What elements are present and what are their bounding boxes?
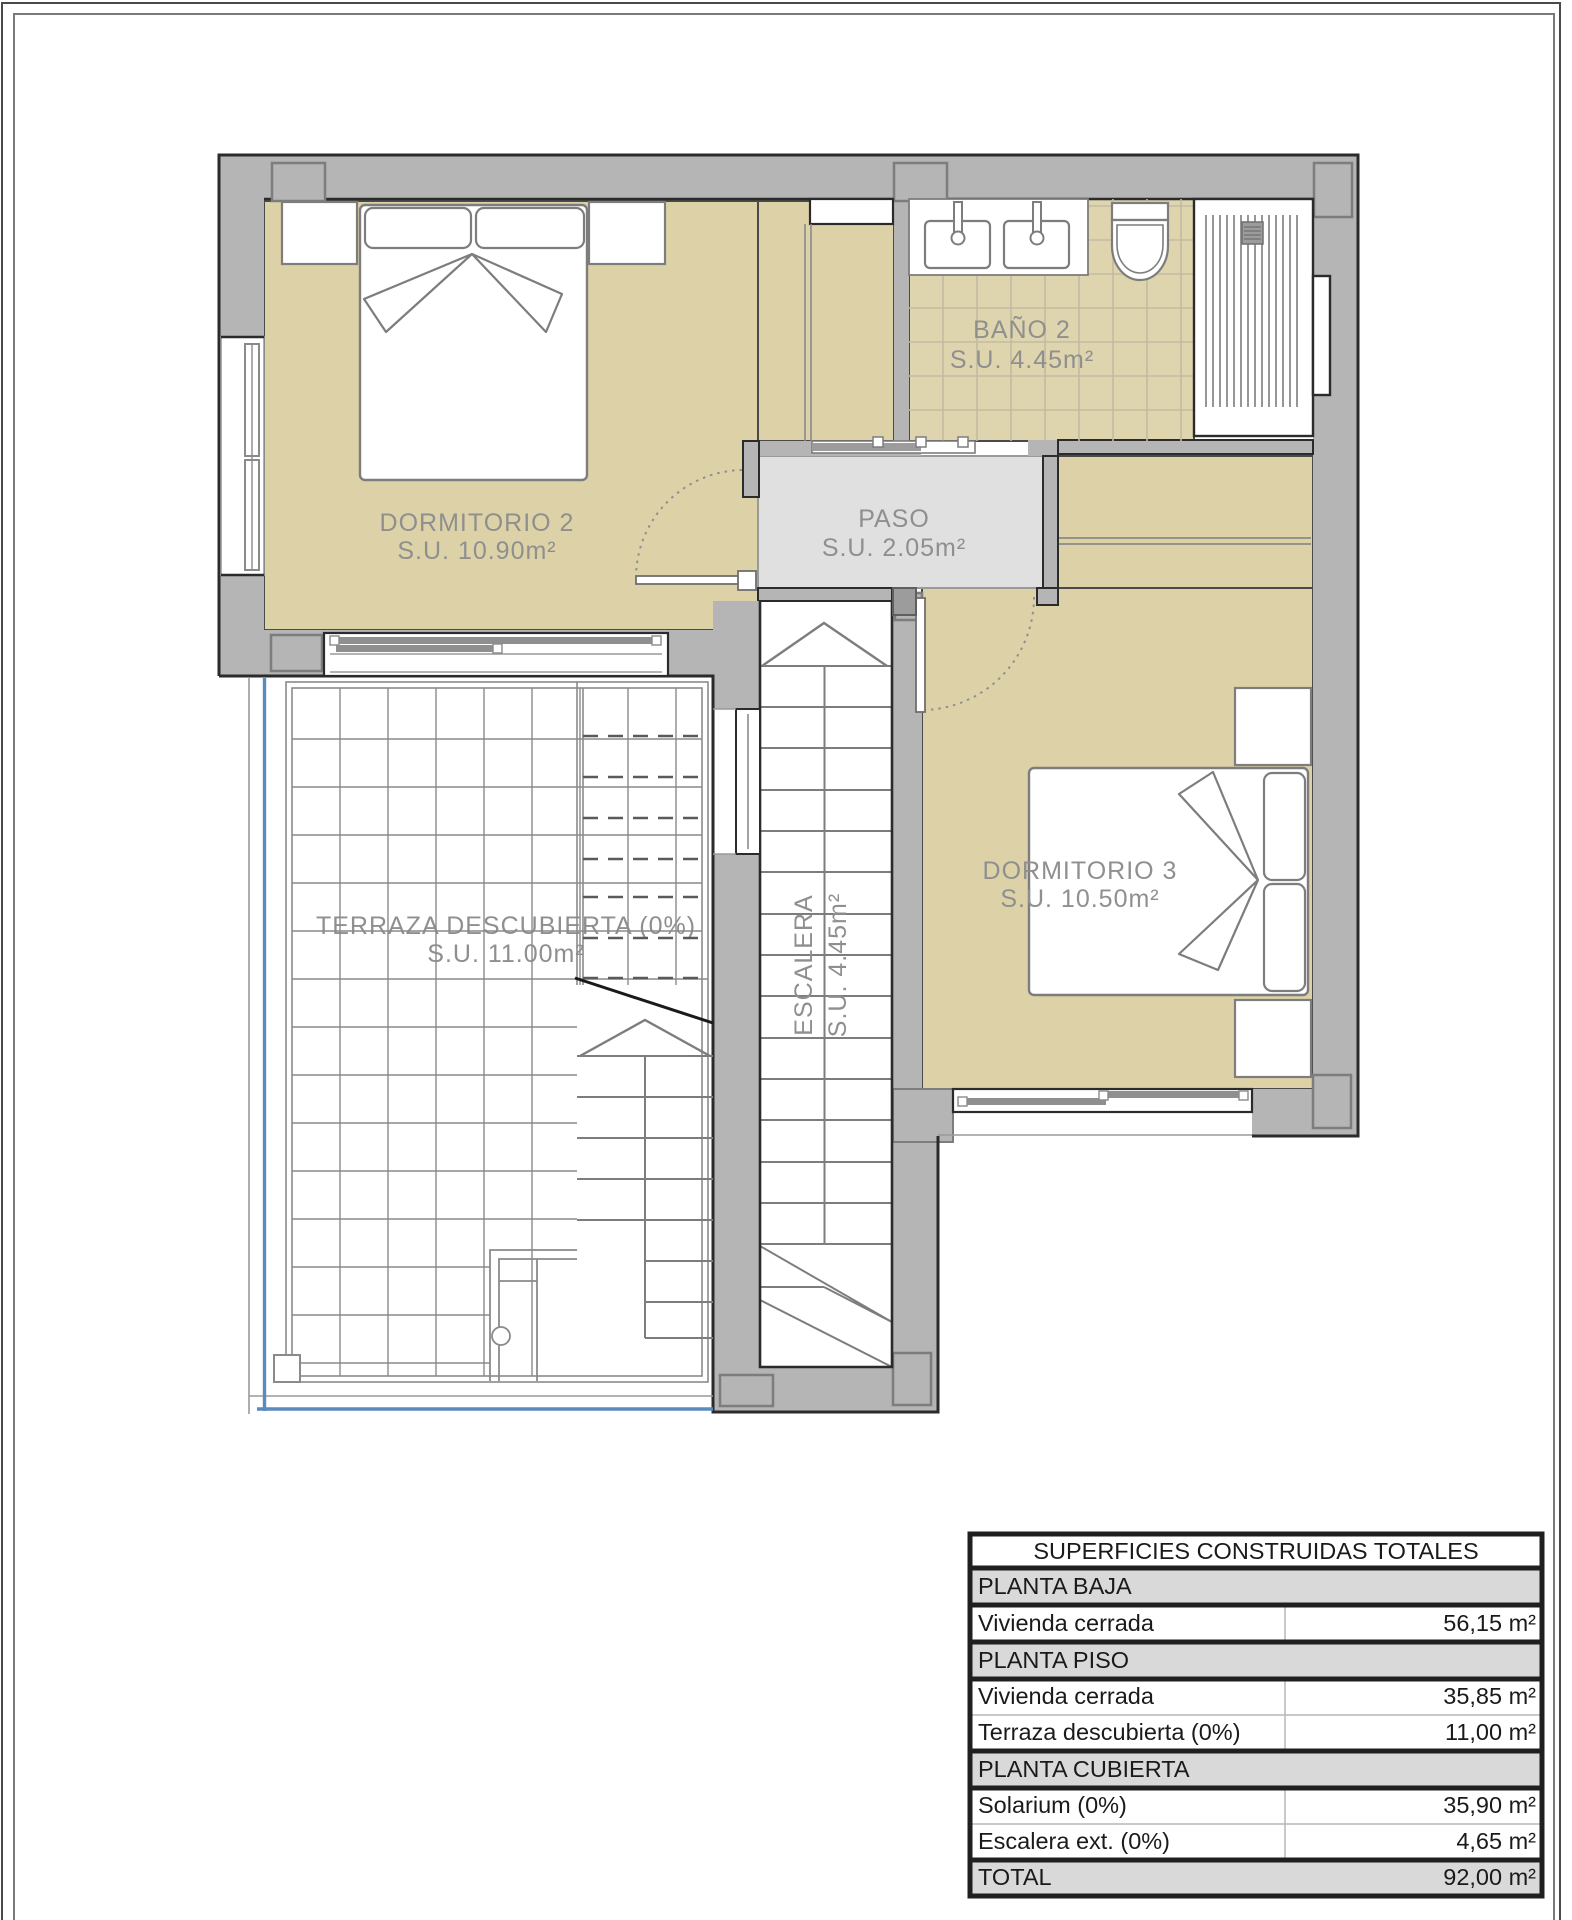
svg-text:Escalera ext. (0%): Escalera ext. (0%) (978, 1828, 1170, 1854)
svg-text:S.U. 11.00m²: S.U. 11.00m² (427, 940, 584, 968)
svg-text:Vivienda cerrada: Vivienda cerrada (978, 1610, 1155, 1636)
svg-text:92,00 m²: 92,00 m² (1443, 1864, 1536, 1890)
svg-text:11,00 m²: 11,00 m² (1445, 1719, 1536, 1745)
svg-text:56,15 m²: 56,15 m² (1443, 1610, 1536, 1636)
svg-text:DORMITORIO 2: DORMITORIO 2 (380, 509, 575, 537)
svg-text:Terraza descubierta (0%): Terraza descubierta (0%) (978, 1719, 1241, 1745)
svg-text:PASO: PASO (858, 505, 930, 533)
svg-text:TERRAZA DESCUBIERTA (0%): TERRAZA DESCUBIERTA (0%) (316, 912, 696, 940)
svg-text:SUPERFICIES CONSTRUIDAS TOTALE: SUPERFICIES CONSTRUIDAS TOTALES (1033, 1538, 1478, 1564)
svg-text:PLANTA PISO: PLANTA PISO (978, 1647, 1129, 1673)
svg-text:PLANTA CUBIERTA: PLANTA CUBIERTA (978, 1756, 1190, 1782)
svg-text:4,65 m²: 4,65 m² (1456, 1828, 1536, 1854)
svg-text:S.U. 10.50m²: S.U. 10.50m² (1000, 885, 1159, 913)
svg-text:35,90 m²: 35,90 m² (1443, 1792, 1536, 1818)
svg-text:35,85 m²: 35,85 m² (1443, 1683, 1536, 1709)
svg-text:S.U. 2.05m²: S.U. 2.05m² (822, 534, 966, 562)
svg-text:Vivienda cerrada: Vivienda cerrada (978, 1683, 1155, 1709)
svg-text:DORMITORIO 3: DORMITORIO 3 (983, 857, 1178, 885)
svg-text:S.U. 10.90m²: S.U. 10.90m² (397, 537, 556, 565)
svg-text:ESCALERA: ESCALERA (790, 894, 818, 1035)
svg-text:Solarium (0%): Solarium (0%) (978, 1792, 1127, 1818)
svg-text:PLANTA BAJA: PLANTA BAJA (978, 1573, 1132, 1599)
svg-text:BAÑO 2: BAÑO 2 (973, 315, 1071, 344)
svg-text:S.U. 4.45m²: S.U. 4.45m² (950, 346, 1094, 374)
svg-text:TOTAL: TOTAL (978, 1864, 1052, 1890)
svg-text:S.U. 4.45m²: S.U. 4.45m² (824, 893, 852, 1037)
